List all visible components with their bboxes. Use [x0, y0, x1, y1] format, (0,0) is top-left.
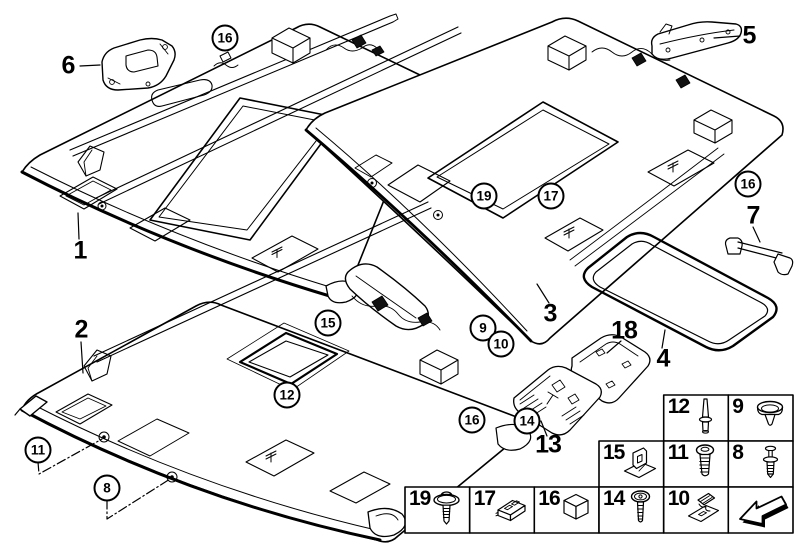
trim-strip-part-5[interactable]: [652, 22, 742, 60]
legend-cell-back[interactable]: [728, 487, 793, 533]
legend-number: 8: [732, 441, 743, 465]
legend-cell-14[interactable]: 14: [599, 487, 664, 533]
legend-cell-15[interactable]: 15: [599, 441, 664, 487]
legend-number: 16: [538, 487, 559, 511]
legend-number: 14: [603, 487, 624, 511]
callout-2[interactable]: 2: [75, 316, 88, 345]
callout-4[interactable]: 4: [657, 345, 670, 374]
callout-11[interactable]: 11: [25, 437, 52, 464]
parts-diagram-page: 6 16 5 1 19 17 16 7 2 3 18 4 15 9 10 12 …: [0, 0, 800, 560]
legend-number: 11: [668, 441, 688, 465]
legend-cell-11[interactable]: 11: [664, 441, 729, 487]
callout-16-c[interactable]: 16: [459, 407, 486, 434]
legend-cell-10[interactable]: 10: [664, 487, 729, 533]
legend-cell-12[interactable]: 12: [664, 395, 729, 441]
bracket-part-7[interactable]: [726, 238, 793, 275]
callout-12[interactable]: 12: [274, 382, 301, 409]
callout-7[interactable]: 7: [747, 202, 760, 231]
legend-cell-16[interactable]: 16: [534, 487, 599, 533]
callout-16-b[interactable]: 16: [735, 171, 762, 198]
callout-1[interactable]: 1: [74, 237, 87, 266]
cover-part-6[interactable]: [102, 39, 175, 91]
legend-number: 15: [603, 441, 624, 465]
callout-3[interactable]: 3: [544, 300, 557, 329]
callout-17[interactable]: 17: [538, 183, 565, 210]
legend-cell-9[interactable]: 9: [728, 395, 793, 441]
callout-8[interactable]: 8: [94, 475, 121, 502]
callout-5[interactable]: 5: [743, 22, 756, 51]
legend-number: 17: [474, 487, 495, 511]
callout-18[interactable]: 18: [611, 317, 637, 346]
callout-15[interactable]: 15: [315, 310, 342, 337]
callout-19[interactable]: 19: [471, 183, 498, 210]
legend-cell-17[interactable]: 17: [470, 487, 535, 533]
callout-6[interactable]: 6: [62, 52, 75, 81]
legend-number: 12: [668, 395, 689, 419]
legend-cell-8[interactable]: 8: [728, 441, 793, 487]
legend-number: 9: [732, 395, 743, 419]
callout-13[interactable]: 13: [535, 431, 561, 460]
callout-10[interactable]: 10: [488, 331, 515, 358]
legend-number: 10: [668, 487, 689, 511]
callout-16-a[interactable]: 16: [212, 25, 239, 52]
legend-cell-19[interactable]: 19: [405, 487, 470, 533]
legend-number: 19: [409, 487, 430, 511]
